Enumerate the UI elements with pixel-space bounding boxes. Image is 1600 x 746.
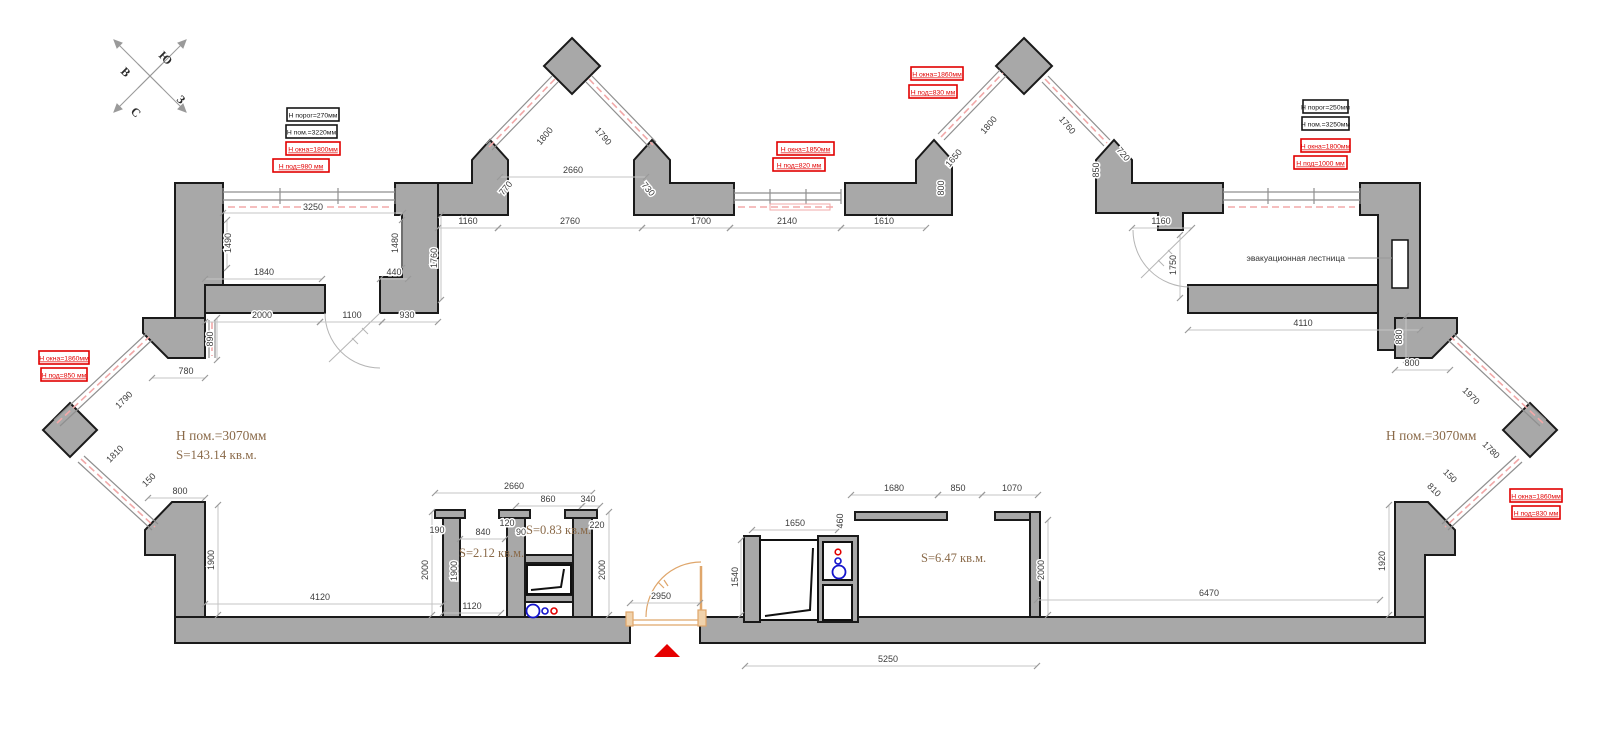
wall-bay2-apex-pillar: [996, 38, 1052, 94]
dimension-label: 220: [589, 520, 604, 530]
dimension-label: 1650: [943, 147, 964, 169]
dimension-label: 460: [835, 513, 845, 528]
wall-wc-3-flange: [565, 510, 597, 518]
dimension-label: 1070: [1002, 483, 1022, 493]
dimension-label: 6470: [1199, 588, 1219, 598]
dimension-label: 1900: [449, 561, 459, 581]
dimension-label: 800: [1404, 358, 1419, 368]
wall-bay1-right-block: [634, 140, 734, 215]
annotation-text: Н окна=1800мм: [1301, 144, 1351, 151]
wall-wc-h1: [525, 555, 573, 563]
wall-right-wing-lower-block: [1395, 502, 1455, 618]
dimension-label: 1800: [978, 114, 999, 136]
annotation-text: Н под=830 мм: [911, 90, 956, 97]
wall-bay1-left-block: [438, 140, 508, 215]
dimension-label: 340: [580, 494, 595, 504]
dimension-label: 800: [172, 486, 187, 496]
wall-left-wing-lower-block: [145, 502, 205, 618]
dimension-label: 1800: [534, 125, 555, 147]
dimension-label: 800: [936, 180, 946, 195]
wall-left-wing-upper-block: [143, 318, 205, 358]
dimension-label: 1160: [1151, 216, 1170, 226]
dimension-label: 1490: [223, 233, 233, 253]
dimension-label: 190: [429, 525, 444, 535]
room-label: Н пом.=3070мм: [1386, 428, 1477, 443]
dimension-label: 2140: [777, 216, 797, 226]
dimension-label: 120: [499, 518, 514, 528]
annotation-text: Н порог=270мм: [289, 113, 338, 120]
annotation-text: Н окна=1800мм: [288, 147, 338, 154]
dimension-label: 2950: [651, 591, 671, 601]
dimension-label: 1760: [429, 248, 439, 268]
riser-water-small-left: [542, 608, 548, 614]
entry-marker-triangle: [654, 644, 680, 657]
room-label: S=0.83 кв.м.: [526, 523, 591, 537]
note-label: эвакуационная лестница: [1247, 253, 1346, 263]
dimension-label: 1810: [104, 443, 125, 464]
dimension-label: 1840: [254, 267, 274, 277]
dimension-label: 440: [386, 267, 401, 277]
room-label: S=2.12 кв.м.: [459, 546, 524, 560]
dimension-label: 90: [516, 527, 526, 537]
dimension-label: 150: [1441, 467, 1459, 485]
compass-letters-layer: ВЮСЗ: [118, 48, 188, 120]
shaft-cell-lower: [823, 585, 852, 620]
annotation-text: Н пом.=3220мм: [287, 130, 337, 137]
wall-room647-top-left: [855, 512, 947, 520]
dimension-label: 1610: [874, 216, 894, 226]
dimension-label: 890: [205, 331, 215, 346]
annotation-text: Н под=830 мм: [1514, 511, 1559, 518]
annotation-text: Н окна=1850мм: [781, 147, 831, 154]
compass-letter-С: С: [128, 104, 144, 120]
dimension-label: 1790: [593, 125, 614, 147]
room-label: Н пом.=3070мм: [176, 428, 267, 443]
dimension-label: 2000: [420, 560, 430, 580]
dimension-label: 850: [950, 483, 965, 493]
dimension-label: 2000: [597, 560, 607, 580]
dimension-label: 150: [140, 471, 158, 489]
wall-stair-left-band: [744, 536, 760, 622]
dimension-label: 2000: [1036, 560, 1046, 580]
dimension-label: 1540: [730, 567, 740, 587]
wall-bottom-left: [175, 617, 630, 643]
dimension-label: 850: [1091, 162, 1101, 177]
dimension-label: 4110: [1293, 318, 1312, 328]
compass-letter-Ю: Ю: [156, 48, 175, 67]
dimension-label: 860: [540, 494, 555, 504]
dimension-label: 5250: [878, 654, 898, 664]
dimension-label: 1160: [458, 216, 477, 226]
wall-right-wing-upper-block: [1395, 318, 1457, 358]
riser-water-small-right: [835, 558, 841, 564]
annotation-text: Н под=820 мм: [777, 163, 822, 170]
dimension-label: 1680: [884, 483, 904, 493]
evacuation-ladder: [1392, 240, 1408, 288]
wall-wc-h2: [525, 595, 573, 602]
wall-wc-1-flange: [435, 510, 465, 518]
room-label: S=143.14 кв.м.: [176, 447, 257, 462]
dimension-label: 3250: [303, 202, 323, 212]
riser-heat-left: [551, 608, 557, 614]
annotation-text: Н пом.=3250мм: [1301, 122, 1351, 129]
wall-bay1-apex-pillar: [544, 38, 600, 94]
dimension-label: 1970: [1461, 385, 1482, 406]
annotation-text: Н окна=1860мм: [912, 72, 962, 79]
compass-letter-В: В: [118, 64, 134, 80]
wall-mid-band: [845, 140, 952, 215]
annotation-text: Н под=850 мм: [42, 373, 87, 380]
floor-plan-svg: 3250149014801840440200011009308901760116…: [0, 0, 1600, 746]
dimension-label: 930: [399, 310, 414, 320]
doors: [325, 230, 1190, 368]
door-top-right-niche: [1133, 230, 1190, 287]
dimension-label: 4120: [310, 592, 330, 602]
door-top-left-room: [325, 313, 380, 368]
annotation-text: Н под=980 мм: [279, 164, 324, 171]
floor-plan-page: 3250149014801840440200011009308901760116…: [0, 0, 1600, 746]
dimension-label: 1480: [390, 233, 400, 253]
compass-letter-З: З: [174, 92, 188, 106]
dimension-label: 1780: [1481, 439, 1502, 460]
dimension-label: 2760: [560, 216, 580, 226]
dimension-label: 1790: [113, 389, 134, 410]
wall-top-left-bay-bottom: [205, 285, 325, 313]
dimension-label: 1760: [1057, 114, 1078, 136]
wall-wc-2-flange: [499, 510, 530, 518]
dimension-label: 1700: [691, 216, 711, 226]
dimension-label: 810: [1425, 481, 1443, 499]
riser-heat-right: [835, 549, 841, 555]
annotation-text: Н под=1000 мм: [1296, 161, 1345, 168]
dimension-label: 1900: [206, 550, 216, 570]
dimension-label: 2660: [563, 165, 583, 175]
dimension-label: 2660: [504, 481, 524, 491]
annotation-text: Н окна=1860мм: [1511, 494, 1561, 501]
dimension-label: 1120: [462, 601, 481, 611]
dimension-label: 2000: [252, 310, 272, 320]
window-top-right-room: [1223, 188, 1360, 204]
dimension-label: 780: [178, 366, 193, 376]
dimension-label: 1650: [785, 518, 805, 528]
riser-water-large-left: [527, 605, 540, 618]
annotation-text: Н окна=1860мм: [39, 356, 89, 363]
dimension-label: 1750: [1168, 255, 1178, 275]
riser-water-large-right: [833, 566, 846, 579]
annotation-text: Н порог=250мм: [1301, 105, 1350, 112]
dimension-label: 1920: [1377, 551, 1387, 571]
notes-layer: эвакуационная лестница: [1247, 253, 1392, 263]
window-mid-2140: [734, 189, 841, 204]
dimension-label: 1100: [342, 310, 361, 320]
dimension-label: 840: [475, 527, 490, 537]
room-label: S=6.47 кв.м.: [921, 551, 986, 565]
dimension-label: 880: [1394, 329, 1404, 344]
